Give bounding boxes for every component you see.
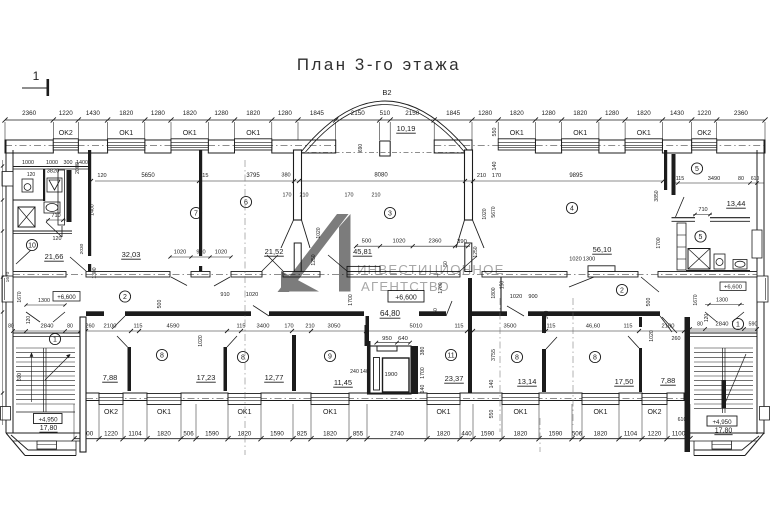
svg-text:2360: 2360	[22, 110, 37, 117]
svg-text:2740: 2740	[390, 431, 404, 438]
svg-text:OK2: OK2	[59, 130, 73, 137]
svg-text:1820: 1820	[119, 110, 134, 117]
svg-text:2000: 2000	[75, 162, 81, 174]
svg-text:3755: 3755	[491, 349, 497, 361]
svg-text:3850: 3850	[654, 190, 660, 201]
svg-text:23,37: 23,37	[445, 374, 464, 383]
svg-text:910: 910	[220, 292, 229, 298]
svg-text:3: 3	[388, 210, 392, 217]
svg-text:5670: 5670	[491, 206, 497, 217]
svg-text:120: 120	[53, 236, 62, 242]
svg-text:2150: 2150	[405, 110, 420, 117]
svg-text:300: 300	[64, 160, 73, 166]
svg-text:1670: 1670	[5, 271, 11, 282]
svg-text:+6,600: +6,600	[57, 295, 76, 301]
svg-text:1820: 1820	[437, 431, 451, 438]
svg-text:OK1: OK1	[157, 409, 171, 416]
svg-text:7,88: 7,88	[103, 373, 118, 382]
svg-text:1020: 1020	[482, 208, 488, 219]
svg-text:1: 1	[736, 321, 740, 328]
svg-text:OK1: OK1	[119, 130, 133, 137]
svg-text:1020: 1020	[198, 335, 204, 347]
svg-text:120: 120	[26, 316, 32, 325]
svg-text:1300: 1300	[92, 267, 98, 278]
svg-text:500: 500	[362, 238, 372, 244]
svg-text:1300: 1300	[583, 257, 595, 263]
svg-text:1900: 1900	[385, 372, 398, 378]
svg-text:OK1: OK1	[183, 130, 197, 137]
svg-text:610: 610	[751, 176, 760, 182]
svg-text:ИНВЕСТИЦИОННОЕ: ИНВЕСТИЦИОННОЕ	[357, 262, 505, 277]
svg-text:80: 80	[738, 176, 744, 182]
svg-text:OK1: OK1	[637, 130, 651, 137]
svg-text:64,80: 64,80	[380, 309, 401, 318]
svg-text:1020: 1020	[393, 238, 406, 244]
svg-text:690: 690	[358, 144, 364, 153]
svg-text:170: 170	[492, 173, 501, 179]
svg-text:2840: 2840	[41, 324, 54, 330]
svg-text:6: 6	[244, 199, 248, 206]
svg-text:В2: В2	[382, 88, 391, 97]
svg-text:1104: 1104	[624, 431, 638, 438]
svg-text:170: 170	[345, 193, 354, 199]
svg-text:+6,600: +6,600	[395, 295, 417, 302]
svg-text:17,80: 17,80	[40, 425, 58, 432]
svg-text:1280: 1280	[278, 110, 293, 117]
svg-text:+4,950: +4,950	[38, 417, 58, 424]
svg-text:1300: 1300	[38, 298, 50, 304]
svg-text:115: 115	[455, 324, 464, 330]
svg-text:1590: 1590	[481, 431, 495, 438]
svg-text:590: 590	[749, 322, 758, 328]
svg-text:5: 5	[695, 166, 699, 173]
svg-text:OK1: OK1	[510, 130, 524, 137]
svg-text:56,10: 56,10	[593, 245, 612, 254]
svg-text:2840: 2840	[716, 322, 729, 328]
svg-text:2100: 2100	[104, 324, 117, 330]
svg-text:855: 855	[353, 431, 364, 438]
svg-text:260: 260	[85, 324, 94, 330]
svg-text:80: 80	[697, 322, 703, 328]
svg-text:OK1: OK1	[513, 409, 527, 416]
svg-text:1820: 1820	[594, 431, 608, 438]
svg-text:1430: 1430	[86, 110, 101, 117]
svg-text:5010: 5010	[410, 324, 423, 330]
svg-text:+4,950: +4,950	[712, 419, 732, 426]
svg-text:1100: 1100	[672, 431, 686, 438]
svg-text:3490: 3490	[708, 176, 720, 182]
svg-text:1820: 1820	[573, 110, 588, 117]
svg-text:3050: 3050	[328, 324, 341, 330]
svg-text:13,44: 13,44	[727, 199, 746, 208]
svg-text:506: 506	[183, 431, 194, 438]
svg-text:1670: 1670	[693, 294, 699, 305]
svg-text:80: 80	[67, 324, 73, 330]
svg-text:210: 210	[305, 324, 314, 330]
svg-text:1220: 1220	[648, 431, 662, 438]
svg-text:8: 8	[593, 354, 597, 361]
svg-text:115: 115	[237, 324, 246, 330]
svg-text:150: 150	[500, 281, 506, 290]
svg-text:140: 140	[492, 162, 498, 171]
svg-text:510: 510	[380, 110, 391, 117]
svg-text:1800: 1800	[491, 287, 497, 298]
svg-text:120: 120	[97, 173, 106, 179]
svg-text:1220: 1220	[59, 110, 74, 117]
svg-text:2: 2	[123, 294, 127, 301]
svg-text:32,03: 32,03	[122, 250, 141, 259]
svg-text:115: 115	[134, 324, 143, 330]
svg-text:1845: 1845	[446, 110, 461, 117]
svg-text:1820: 1820	[157, 431, 171, 438]
svg-text:1820: 1820	[323, 431, 337, 438]
svg-text:900: 900	[528, 294, 537, 300]
svg-text:1250: 1250	[473, 246, 479, 257]
svg-text:1020: 1020	[246, 292, 258, 298]
svg-text:12,77: 12,77	[265, 373, 284, 382]
svg-text:3400: 3400	[257, 324, 270, 330]
svg-text:2030: 2030	[79, 243, 85, 254]
svg-text:210: 210	[372, 193, 381, 199]
svg-text:50: 50	[433, 308, 439, 314]
svg-text:500: 500	[646, 298, 652, 307]
svg-text:45,81: 45,81	[353, 247, 372, 256]
svg-text:1280: 1280	[478, 110, 493, 117]
svg-text:1820: 1820	[510, 110, 525, 117]
svg-text:OK2: OK2	[697, 130, 711, 137]
svg-text:710: 710	[51, 213, 60, 219]
svg-text:5: 5	[699, 234, 703, 241]
svg-text:170: 170	[283, 193, 292, 199]
svg-text:440: 440	[461, 431, 472, 438]
svg-text:240: 240	[350, 369, 359, 375]
svg-text:4: 4	[570, 205, 574, 212]
svg-text:1220: 1220	[697, 110, 712, 117]
svg-text:120: 120	[704, 314, 710, 323]
svg-text:10,19: 10,19	[397, 124, 416, 133]
svg-text:2360: 2360	[429, 238, 442, 244]
svg-text:46,60: 46,60	[586, 324, 601, 330]
svg-text:8: 8	[241, 354, 245, 361]
svg-text:OK1: OK1	[593, 409, 607, 416]
svg-text:1700: 1700	[348, 294, 354, 306]
svg-text:80: 80	[8, 324, 14, 330]
svg-text:115: 115	[547, 324, 556, 330]
svg-text:9895: 9895	[569, 173, 583, 179]
svg-text:380: 380	[281, 173, 290, 179]
svg-text:115: 115	[624, 324, 633, 330]
svg-text:1700: 1700	[420, 367, 426, 379]
svg-text:1280: 1280	[541, 110, 556, 117]
svg-text:1280: 1280	[605, 110, 620, 117]
svg-text:21,52: 21,52	[265, 247, 284, 256]
svg-text:550: 550	[489, 410, 495, 419]
svg-text:OK1: OK1	[237, 409, 251, 416]
svg-text:825: 825	[297, 431, 308, 438]
svg-text:1300: 1300	[716, 298, 728, 304]
svg-text:17,23: 17,23	[197, 373, 216, 382]
svg-text:390: 390	[457, 239, 467, 245]
svg-text:550: 550	[492, 128, 498, 137]
svg-text:1590: 1590	[549, 431, 563, 438]
svg-text:120: 120	[27, 172, 36, 178]
svg-text:5650: 5650	[141, 173, 155, 179]
svg-text:3820: 3820	[47, 169, 59, 175]
svg-text:+6,600: +6,600	[724, 285, 742, 291]
svg-text:260: 260	[672, 336, 681, 342]
svg-text:1000: 1000	[46, 160, 58, 166]
svg-text:2150: 2150	[351, 110, 366, 117]
svg-text:10: 10	[28, 242, 36, 249]
svg-text:1820: 1820	[514, 431, 528, 438]
svg-text:1280: 1280	[214, 110, 229, 117]
svg-text:9: 9	[328, 353, 332, 360]
svg-text:170: 170	[284, 324, 293, 330]
svg-text:3500: 3500	[504, 324, 517, 330]
svg-text:1280: 1280	[151, 110, 166, 117]
svg-text:1700: 1700	[656, 237, 662, 248]
svg-text:1845: 1845	[310, 110, 325, 117]
svg-text:640: 640	[398, 336, 408, 342]
svg-text:OK1: OK1	[436, 409, 450, 416]
svg-text:OK1: OK1	[323, 409, 337, 416]
svg-text:1220: 1220	[104, 431, 118, 438]
svg-text:1020: 1020	[174, 250, 186, 256]
svg-text:115: 115	[676, 176, 685, 182]
svg-text:1820: 1820	[183, 110, 198, 117]
svg-text:210: 210	[300, 193, 309, 199]
svg-text:17,50: 17,50	[615, 377, 634, 386]
svg-text:АГЕНТСТВО: АГЕНТСТВО	[361, 279, 450, 294]
svg-text:7,88: 7,88	[661, 376, 676, 385]
svg-text:1: 1	[33, 69, 40, 83]
svg-text:1670: 1670	[17, 291, 23, 302]
svg-text:380: 380	[420, 347, 426, 356]
svg-text:7: 7	[194, 210, 198, 217]
svg-text:2360: 2360	[734, 110, 749, 117]
svg-text:8: 8	[515, 354, 519, 361]
svg-text:1000: 1000	[22, 160, 34, 166]
svg-text:OK1: OK1	[573, 130, 587, 137]
svg-text:500: 500	[157, 300, 163, 309]
svg-text:1: 1	[53, 336, 57, 343]
svg-text:1020: 1020	[215, 250, 227, 256]
svg-text:140: 140	[360, 369, 369, 375]
svg-text:1590: 1590	[270, 431, 284, 438]
svg-text:1104: 1104	[128, 431, 142, 438]
svg-text:1020: 1020	[569, 257, 581, 263]
svg-text:710: 710	[698, 207, 707, 213]
svg-text:OK2: OK2	[104, 409, 118, 416]
svg-text:8: 8	[160, 352, 164, 359]
svg-text:500: 500	[544, 311, 550, 320]
svg-text:140: 140	[420, 385, 426, 394]
svg-text:910: 910	[196, 250, 205, 256]
svg-text:950: 950	[382, 336, 392, 342]
svg-text:OK2: OK2	[647, 409, 661, 416]
svg-text:1590: 1590	[205, 431, 219, 438]
svg-text:1820: 1820	[637, 110, 652, 117]
svg-text:13,14: 13,14	[518, 377, 537, 386]
svg-text:11,45: 11,45	[334, 378, 352, 387]
svg-text:210: 210	[477, 173, 486, 179]
svg-text:21,66: 21,66	[45, 252, 64, 261]
svg-text:4590: 4590	[167, 324, 180, 330]
svg-text:140: 140	[489, 380, 495, 389]
svg-text:1020: 1020	[649, 330, 655, 342]
svg-text:План 3-го этажа: План 3-го этажа	[297, 55, 461, 74]
svg-text:115: 115	[200, 173, 209, 179]
svg-text:11: 11	[447, 352, 454, 359]
svg-text:3795: 3795	[246, 173, 260, 179]
svg-text:OK1: OK1	[246, 130, 260, 137]
svg-text:1820: 1820	[246, 110, 261, 117]
svg-text:506: 506	[572, 431, 583, 438]
svg-text:600: 600	[17, 373, 23, 382]
svg-text:1020: 1020	[510, 294, 522, 300]
svg-text:1400: 1400	[90, 204, 96, 216]
svg-text:2: 2	[620, 287, 624, 294]
svg-text:8080: 8080	[374, 173, 388, 179]
svg-text:1430: 1430	[670, 110, 685, 117]
